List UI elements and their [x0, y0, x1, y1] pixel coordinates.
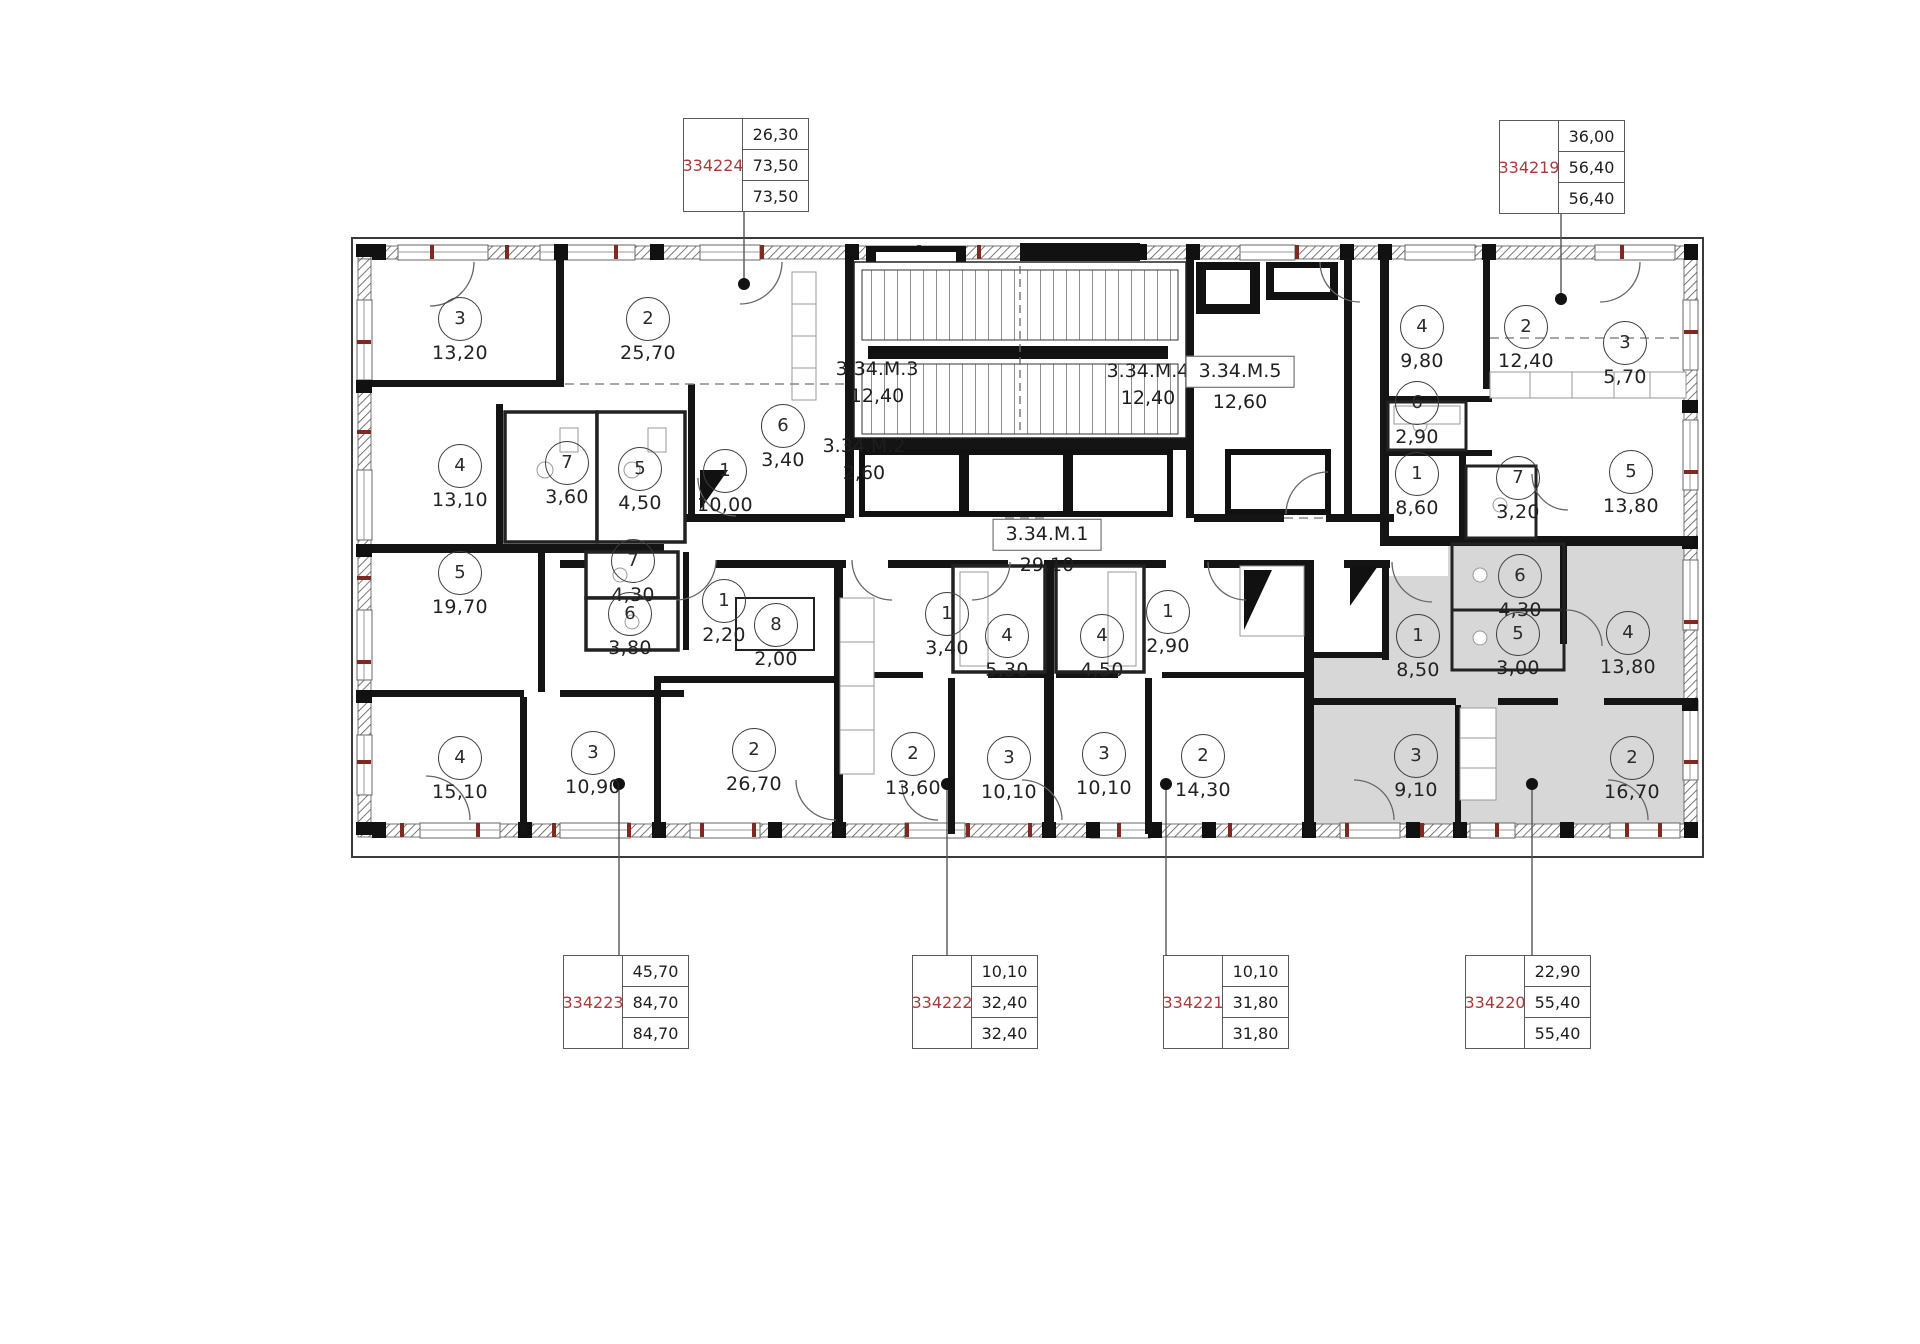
apartment-value-row: 55,40: [1525, 987, 1590, 1018]
room-number-circle: 5: [438, 551, 482, 595]
apartment-value-row: 73,50: [743, 150, 808, 181]
room-label-334219-5: 5 13,80: [1576, 450, 1686, 516]
core-area-value: 12,40: [1107, 387, 1190, 411]
room-label-334219-7: 7 3,20: [1463, 456, 1573, 522]
room-area: 26,70: [699, 775, 809, 794]
room-label-334223-2: 2 26,70: [699, 728, 809, 794]
apartment-id: 334221: [1164, 956, 1223, 1048]
room-area: 2,90: [1113, 637, 1223, 656]
room-label-334219-4: 4 9,80: [1367, 305, 1477, 371]
room-number-circle: 8: [754, 603, 798, 647]
room-label-334221-2: 2 14,30: [1148, 734, 1258, 800]
room-number-circle: 6: [1395, 381, 1439, 425]
apartment-info-box-334220[interactable]: 334220 22,90 55,40 55,40: [1465, 955, 1591, 1049]
room-area: 10,10: [954, 783, 1064, 802]
apartment-values: 10,10 32,40 32,40: [972, 956, 1037, 1048]
room-number-circle: 7: [1496, 456, 1540, 500]
room-number-circle: 5: [1609, 450, 1653, 494]
core-area-name: 3.34.M.2: [823, 435, 906, 459]
room-number-circle: 7: [611, 539, 655, 583]
apartment-value-row: 73,50: [743, 181, 808, 211]
apartment-value-row: 36,00: [1559, 121, 1624, 152]
apartment-value-row: 84,70: [623, 987, 688, 1018]
room-area: 10,00: [670, 496, 780, 515]
room-number-circle: 2: [891, 732, 935, 776]
room-number-circle: 6: [608, 592, 652, 636]
floor-plan-page: 3 13,20 2 25,70 4 13,10 7 3,60 5 4,50 6 …: [0, 0, 1920, 1344]
room-area: 9,80: [1367, 352, 1477, 371]
room-label-334219-3: 3 5,70: [1570, 321, 1680, 387]
room-label-334221-1: 1 2,90: [1113, 590, 1223, 656]
room-label-334220-4: 4 13,80: [1573, 611, 1683, 677]
core-area-label-3.34.M.3: 3.34.M.3 12,40: [836, 358, 919, 409]
apartment-value-row: 10,10: [1223, 956, 1288, 987]
room-label-334219-6: 6 2,90: [1362, 381, 1472, 447]
room-label-334222-2: 2 13,60: [858, 732, 968, 798]
room-area: 13,80: [1573, 658, 1683, 677]
apartment-value-row: 56,40: [1559, 152, 1624, 183]
room-area: 10,90: [538, 778, 648, 797]
apartment-id: 334222: [913, 956, 972, 1048]
apartment-value-row: 31,80: [1223, 1018, 1288, 1048]
core-area-name: 3.34.M.4: [1107, 360, 1190, 384]
room-area: 25,70: [593, 344, 703, 363]
room-label-334220-5: 5 3,00: [1463, 612, 1573, 678]
room-area: 13,60: [858, 779, 968, 798]
apartment-id: 334219: [1500, 121, 1559, 213]
apartment-value-row: 45,70: [623, 956, 688, 987]
apartment-info-box-334219[interactable]: 334219 36,00 56,40 56,40: [1499, 120, 1625, 214]
room-number-circle: 1: [703, 449, 747, 493]
room-number-circle: 1: [1396, 614, 1440, 658]
room-number-circle: 2: [732, 728, 776, 772]
core-area-name: 3.34.M.3: [836, 358, 919, 382]
room-number-circle: 5: [1496, 612, 1540, 656]
room-label-334224-3: 3 13,20: [405, 297, 515, 363]
room-number-circle: 2: [1181, 734, 1225, 778]
room-number-circle: 1: [1146, 590, 1190, 634]
room-label-334222-3: 3 10,10: [954, 736, 1064, 802]
apartment-info-box-334224[interactable]: 334224 26,30 73,50 73,50: [683, 118, 809, 212]
room-label-334223-3: 3 10,90: [538, 731, 648, 797]
apartment-value-row: 32,40: [972, 1018, 1037, 1048]
leader-dot-334220: [1526, 778, 1538, 790]
room-number-circle: 7: [545, 441, 589, 485]
room-area: 12,40: [1471, 352, 1581, 371]
room-label-334224-2: 2 25,70: [593, 297, 703, 363]
apartment-values: 36,00 56,40 56,40: [1559, 121, 1624, 213]
apartment-id: 334220: [1466, 956, 1525, 1048]
apartment-info-box-334223[interactable]: 334223 45,70 84,70 84,70: [563, 955, 689, 1049]
apartment-info-box-334221[interactable]: 334221 10,10 31,80 31,80: [1163, 955, 1289, 1049]
core-area-value: 2,60: [823, 462, 906, 486]
apartment-value-row: 22,90: [1525, 956, 1590, 987]
apartment-value-row: 31,80: [1223, 987, 1288, 1018]
apartment-id: 334223: [564, 956, 623, 1048]
room-area: 9,10: [1361, 781, 1471, 800]
room-area: 10,10: [1049, 779, 1159, 798]
room-area: 8,60: [1362, 499, 1472, 518]
apartment-value-row: 55,40: [1525, 1018, 1590, 1048]
room-number-circle: 3: [1082, 732, 1126, 776]
core-area-name: 3.34.M.1: [993, 519, 1102, 551]
room-area: 13,80: [1576, 497, 1686, 516]
apartment-values: 10,10 31,80 31,80: [1223, 956, 1288, 1048]
room-label-334219-2: 2 12,40: [1471, 305, 1581, 371]
room-label-334224-1: 1 10,00: [670, 449, 780, 515]
room-number-circle: 4: [1400, 305, 1444, 349]
leader-dot-334219: [1555, 293, 1567, 305]
room-number-circle: 2: [1610, 736, 1654, 780]
room-label-334220-6: 6 4,30: [1465, 554, 1575, 620]
core-area-value: 12,40: [836, 385, 919, 409]
room-number-circle: 2: [1504, 305, 1548, 349]
apartment-value-row: 84,70: [623, 1018, 688, 1048]
room-label-334223-5: 5 19,70: [405, 551, 515, 617]
room-number-circle: 4: [985, 614, 1029, 658]
room-area: 3,00: [1463, 659, 1573, 678]
apartment-id: 334224: [684, 119, 743, 211]
room-area: 4,50: [1047, 661, 1157, 680]
apartment-values: 45,70 84,70 84,70: [623, 956, 688, 1048]
apartment-value-row: 56,40: [1559, 183, 1624, 213]
room-number-circle: 3: [571, 731, 615, 775]
core-area-value: 29,10: [993, 554, 1102, 578]
room-area: 14,30: [1148, 781, 1258, 800]
room-area: 19,70: [405, 598, 515, 617]
room-area: 13,20: [405, 344, 515, 363]
room-label-334223-4: 4 15,10: [405, 736, 515, 802]
room-label-334219-1: 1 8,60: [1362, 452, 1472, 518]
core-area-value: 12,60: [1186, 391, 1295, 415]
room-area: 5,30: [952, 661, 1062, 680]
room-area: 15,10: [405, 783, 515, 802]
room-number-circle: 4: [1606, 611, 1650, 655]
room-number-circle: 2: [626, 297, 670, 341]
room-number-circle: 3: [438, 297, 482, 341]
room-number-circle: 3: [1603, 321, 1647, 365]
room-label-334220-2: 2 16,70: [1577, 736, 1687, 802]
room-area: 13,10: [405, 491, 515, 510]
core-area-name: 3.34.M.5: [1186, 356, 1295, 388]
room-number-circle: 6: [1498, 554, 1542, 598]
leader-dot-334224: [738, 278, 750, 290]
room-area: 2,90: [1362, 428, 1472, 447]
room-label-334220-1: 1 8,50: [1363, 614, 1473, 680]
apartment-info-box-334222[interactable]: 334222 10,10 32,40 32,40: [912, 955, 1038, 1049]
apartment-value-row: 32,40: [972, 987, 1037, 1018]
room-number-circle: 5: [618, 447, 662, 491]
room-label-334220-3: 3 9,10: [1361, 734, 1471, 800]
apartment-values: 26,30 73,50 73,50: [743, 119, 808, 211]
room-number-circle: 4: [438, 736, 482, 780]
core-area-label-3.34.M.2: 3.34.M.2 2,60: [823, 435, 906, 486]
apartment-value-row: 26,30: [743, 119, 808, 150]
room-area: 5,70: [1570, 368, 1680, 387]
apartment-value-row: 10,10: [972, 956, 1037, 987]
room-number-circle: 6: [761, 404, 805, 448]
room-number-circle: 1: [1395, 452, 1439, 496]
apartment-values: 22,90 55,40 55,40: [1525, 956, 1590, 1048]
room-label-334224-4: 4 13,10: [405, 444, 515, 510]
room-number-circle: 3: [1394, 734, 1438, 778]
room-label-334222-4: 4 5,30: [952, 614, 1062, 680]
core-area-label-3.34.M.4: 3.34.M.4 12,40: [1107, 360, 1190, 411]
core-area-label-3.34.M.5: 3.34.M.5 12,60: [1186, 356, 1295, 415]
room-area: 16,70: [1577, 783, 1687, 802]
room-number-circle: 3: [987, 736, 1031, 780]
room-label-334221-3: 3 10,10: [1049, 732, 1159, 798]
room-area: 3,20: [1463, 503, 1573, 522]
room-area: 8,50: [1363, 661, 1473, 680]
room-area: 2,00: [721, 650, 831, 669]
room-label-334223-8: 8 2,00: [721, 603, 831, 669]
core-area-label-3.34.M.1: 3.34.M.1 29,10: [993, 519, 1102, 578]
room-number-circle: 4: [438, 444, 482, 488]
